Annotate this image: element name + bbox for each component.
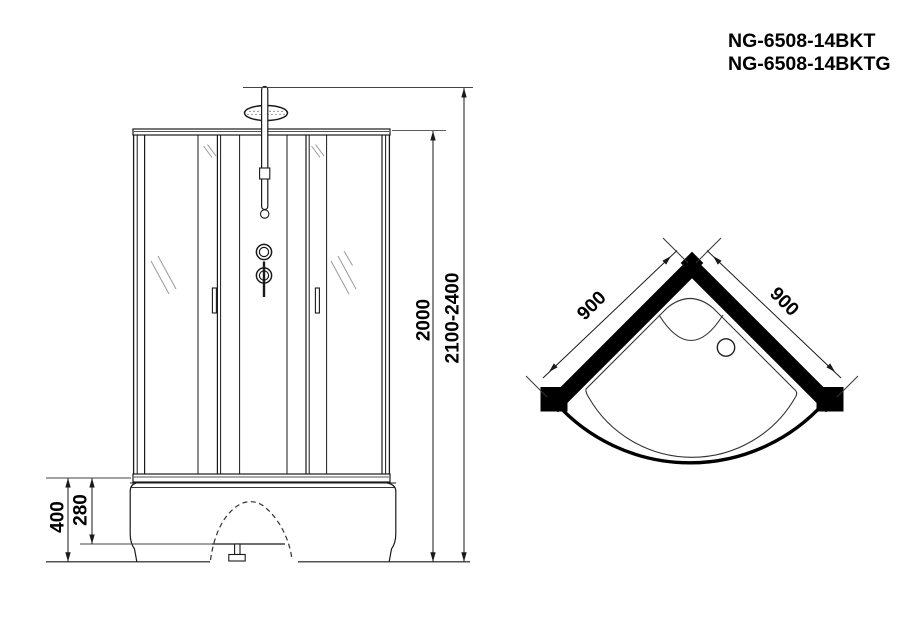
- wall-end-block-left: [541, 387, 568, 412]
- shower-cabin-spec-sheet: NG-6508-14BKT NG-6508-14BKTG: [0, 0, 900, 637]
- front-left-dimensions: 400 280: [46, 478, 470, 562]
- dim-label-base-height: 400: [48, 501, 69, 533]
- front-right-dimensions: 2000 2100-2400: [243, 88, 473, 562]
- door-handles: [212, 288, 319, 313]
- dim-label-base-step: 280: [71, 494, 92, 526]
- tray-access-arch-dashed: [211, 502, 293, 560]
- dim-label-side-right: 900: [765, 283, 802, 320]
- dim-label-glass-height: 2000: [414, 299, 435, 341]
- top-view-drawing: 900 900: [526, 238, 858, 463]
- drain-foot: [212, 544, 285, 561]
- technical-drawing: 400 280 2000 2100-2400: [0, 0, 900, 637]
- drain-circle: [717, 339, 734, 356]
- tray-base: [130, 483, 396, 562]
- shower-riser-pole: [260, 87, 270, 219]
- glass-reflection-marks: [151, 145, 356, 295]
- cabin-bottom-bar: [133, 474, 390, 482]
- dim-label-total-height: 2100-2400: [443, 273, 464, 364]
- front-view-drawing: 400 280 2000 2100-2400: [46, 87, 473, 562]
- tray-outline: [586, 299, 797, 458]
- mixer-controls: [256, 244, 271, 297]
